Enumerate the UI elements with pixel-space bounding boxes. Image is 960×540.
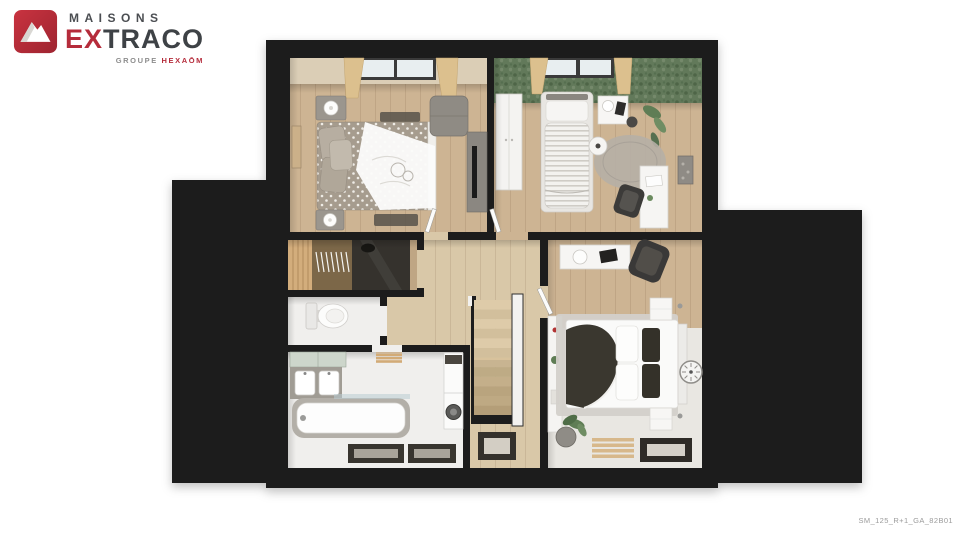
bathtub <box>292 394 410 438</box>
hall-floor-mat <box>478 432 516 460</box>
staircase <box>468 296 512 424</box>
double-bed-3 <box>566 320 687 408</box>
tv-cabinet <box>467 132 487 212</box>
bath-floor-mats <box>348 444 456 463</box>
desk-2 <box>640 166 668 228</box>
nightstand-1b <box>316 210 344 230</box>
wc-door-gap <box>380 306 387 336</box>
stair-balustrade <box>512 294 523 426</box>
wc-room <box>288 297 380 345</box>
nightstand-2 <box>598 96 628 124</box>
floor-plan <box>0 0 960 540</box>
single-bed <box>541 92 593 212</box>
toilet <box>306 303 348 329</box>
double-bed-1 <box>317 122 436 210</box>
nightstand-1a <box>316 96 346 120</box>
plan-reference-code: SM_125_R+1_GA_82B01 <box>858 516 953 525</box>
dressing-room <box>288 240 417 290</box>
dressing-door-gap <box>417 250 424 288</box>
wall-sconce-a <box>678 304 683 309</box>
bedside-rug-top <box>380 112 420 122</box>
bathroom <box>288 350 463 468</box>
bedroom-1-door-gap <box>424 232 448 240</box>
desk-3 <box>560 245 630 269</box>
bedroom-3-floor-mat <box>640 438 692 462</box>
side-table-round <box>589 137 607 155</box>
bathroom-door-gap <box>372 345 402 352</box>
wall-clock <box>680 361 702 383</box>
mirror-cabinet <box>290 352 346 367</box>
bedroom-3 <box>537 237 702 468</box>
bedroom-2-door-gap <box>496 232 528 240</box>
wall-picture-frame-1 <box>292 126 301 168</box>
bedroom-1-window <box>356 58 436 80</box>
page: MAISONS EXTRACO GROUPE HEXAŌM <box>0 0 960 540</box>
nightstand-3a <box>650 298 672 320</box>
washing-machine-column <box>444 353 463 429</box>
bedroom-2 <box>494 58 702 232</box>
wall-picture-frame-2 <box>678 156 693 184</box>
wall-sconce-b <box>678 414 683 419</box>
bedroom-2-window <box>542 58 614 78</box>
nightstand-3b <box>650 408 672 430</box>
round-hat <box>627 117 638 128</box>
bedside-rug-bottom <box>374 214 418 226</box>
bedroom-1 <box>290 58 487 232</box>
stair-void-edge <box>474 415 512 424</box>
shower-glass-screen <box>334 394 410 399</box>
